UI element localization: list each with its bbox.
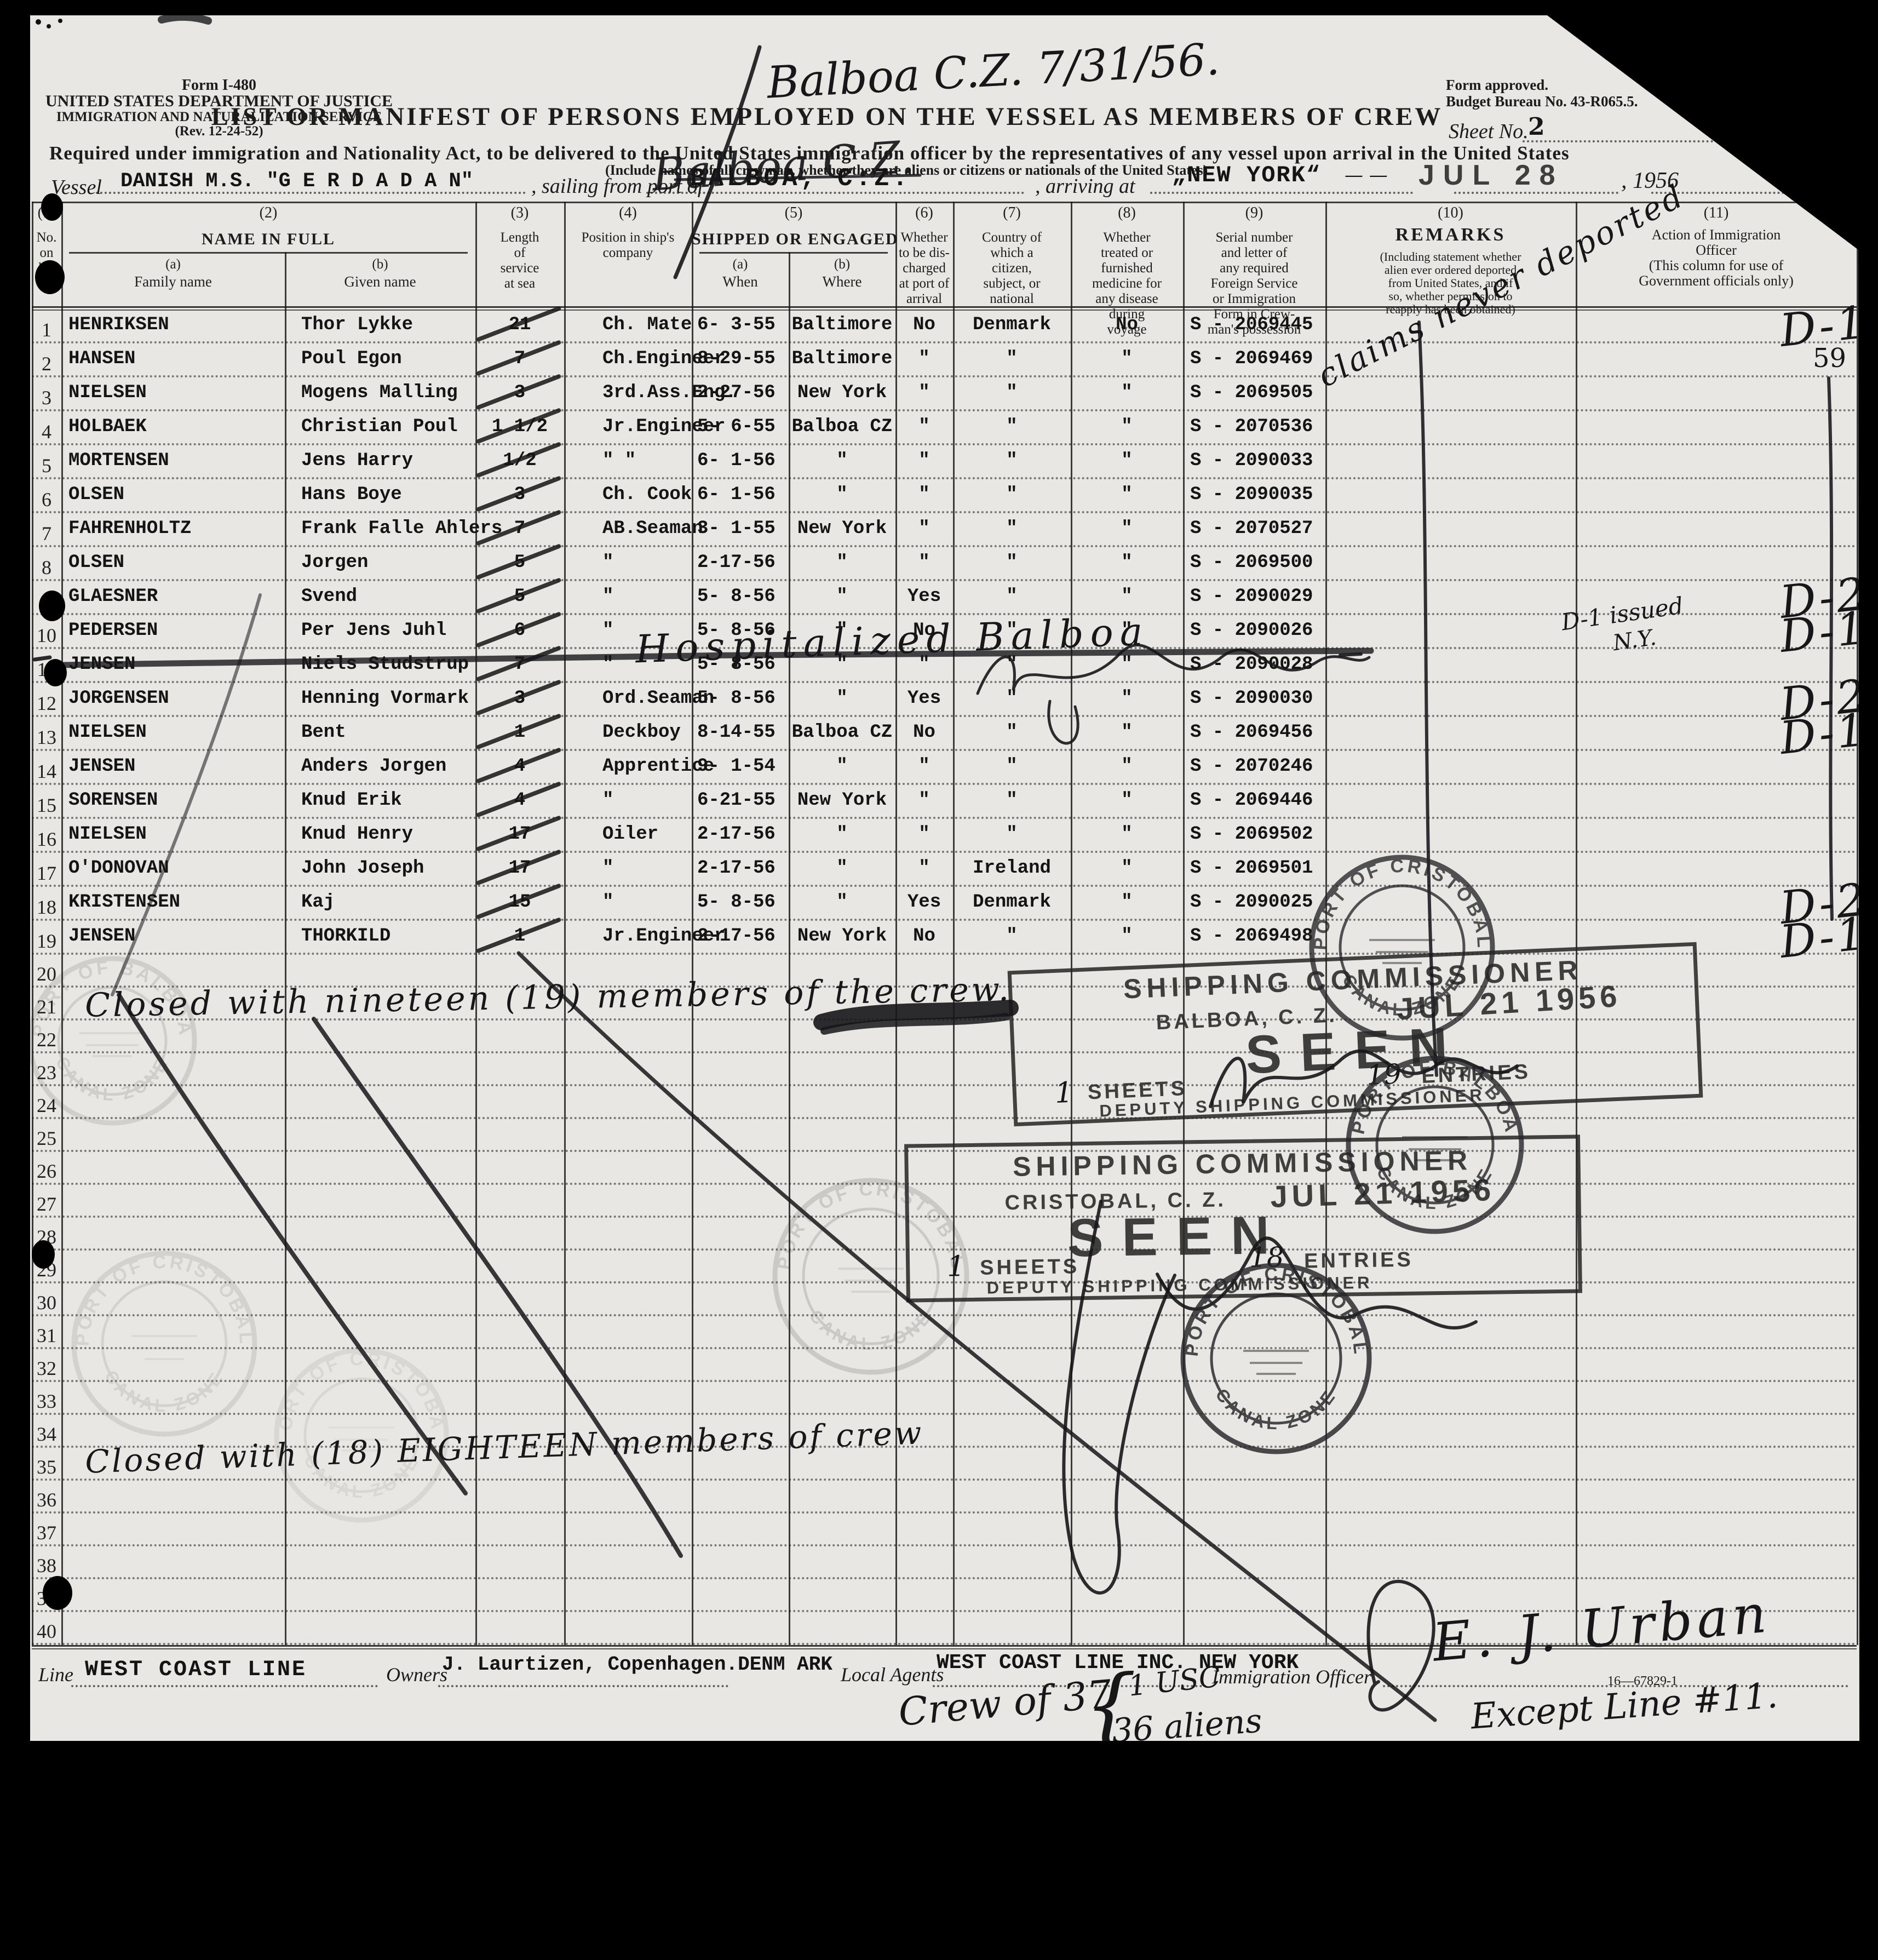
crew-where: New York — [789, 518, 895, 540]
crew-given: Niels Studstrup — [301, 654, 469, 675]
crew-dis: " — [895, 552, 953, 574]
crew-med: " — [1071, 857, 1183, 879]
row-number: 23 — [32, 1061, 61, 1084]
crew-when: 6- 3-55 — [697, 314, 776, 336]
crew-family: JENSEN — [68, 755, 135, 777]
crew-pos: " " — [602, 450, 636, 472]
line-label: Line — [38, 1663, 73, 1686]
crew-med: " — [1071, 552, 1183, 574]
crew-given: Knud Henry — [301, 823, 413, 845]
crew-when: 2-17-56 — [697, 857, 776, 879]
row-number: 25 — [32, 1127, 61, 1150]
column-subtext: arrival — [895, 291, 953, 307]
column-subtext: medicine for — [1071, 276, 1183, 291]
row-separator — [32, 783, 1857, 785]
crew-family: HENRIKSEN — [68, 314, 169, 336]
row-number: 40 — [32, 1620, 61, 1643]
column-subtext: Length — [475, 230, 564, 245]
crew-dis: No — [895, 721, 953, 743]
crew-given: Anders Jorgen — [301, 755, 446, 777]
row-separator — [32, 851, 1857, 853]
row-separator — [32, 1117, 1857, 1119]
column-subtext: (This column for use of — [1576, 257, 1857, 274]
crew-serial: S - 2069446 — [1190, 789, 1313, 811]
crew-serial: S - 2090030 — [1190, 687, 1313, 709]
crew-dis: Yes — [895, 891, 953, 913]
row-separator — [32, 1478, 1857, 1481]
crew-country: " — [953, 552, 1071, 574]
crew-country: " — [953, 789, 1071, 811]
crew-family: O'DONOVAN — [68, 857, 169, 879]
crew-family: PEDERSEN — [68, 620, 158, 641]
crew-where: " — [789, 586, 895, 608]
column-subtext: Position in ship's — [564, 230, 692, 245]
cristobal-stamp-sheets-value: 1 — [947, 1250, 966, 1283]
column-number: (1) — [32, 205, 61, 221]
row-number: 38 — [32, 1554, 61, 1577]
crew-country: " — [953, 416, 1071, 438]
crew-when: 6- 1-56 — [697, 450, 776, 472]
crew-dis: " — [895, 348, 953, 370]
balboa-seen-stamp: SHIPPING COMMISSIONER BALBOA, C. Z. JUL … — [1008, 942, 1703, 1126]
crew-med: " — [1071, 382, 1183, 404]
crew-given: Thor Lykke — [301, 314, 413, 336]
row-number: 37 — [32, 1521, 61, 1544]
crew-country: " — [953, 450, 1071, 472]
crew-family: NIELSEN — [68, 823, 147, 845]
owners-rule — [438, 1685, 728, 1687]
table-top-rule — [32, 202, 1857, 203]
row-number: 5 — [32, 454, 61, 477]
column-line — [61, 202, 63, 1645]
row-number: 9 — [32, 590, 61, 613]
row-separator — [32, 1511, 1857, 1514]
crew-when: 2-27-56 — [697, 382, 776, 404]
row-number: 7 — [32, 522, 61, 545]
crew-med: " — [1071, 348, 1183, 370]
crew-family: JORGENSEN — [68, 687, 169, 709]
balboa-stamp-entries-value: 19 — [1366, 1058, 1402, 1092]
crew-pos: " — [602, 552, 613, 574]
crew-dis: " — [895, 450, 953, 472]
row-separator — [32, 1413, 1857, 1415]
crew-med: " — [1071, 891, 1183, 913]
column-subtext: national — [953, 291, 1071, 307]
crew-dis: " — [895, 789, 953, 811]
row-separator — [32, 817, 1857, 819]
subcolumn-letter: (a) — [61, 256, 285, 272]
crew-med: " — [1071, 925, 1183, 947]
subcolumn-title: When — [692, 274, 789, 290]
crew-dis: " — [895, 857, 953, 879]
crew-where: New York — [789, 789, 895, 811]
row-number: 11 — [32, 658, 61, 681]
row-number: 19 — [32, 930, 61, 953]
column-subtext: charged — [895, 261, 953, 276]
crew-when: 5- 8-56 — [697, 687, 776, 709]
column-line — [1325, 202, 1327, 1645]
owners-label: Owners — [386, 1663, 447, 1686]
column-subtext: citizen, — [953, 261, 1071, 276]
crew-given: THORKILD — [301, 925, 390, 947]
crew-med: " — [1071, 518, 1183, 540]
column-subtext: at sea — [475, 276, 564, 291]
column-subtext: Government officials only) — [1576, 273, 1857, 289]
crew-serial: S - 2070527 — [1190, 518, 1313, 540]
cristobal-stamp-entries-value: 18 — [1249, 1241, 1284, 1274]
cristobal-seen-stamp: SHIPPING COMMISSIONER CRISTOBAL, C. Z. J… — [904, 1134, 1582, 1302]
crew-serial: S - 2070536 — [1190, 416, 1313, 438]
crew-country: Denmark — [953, 891, 1071, 913]
crew-given: Hans Boye — [301, 484, 402, 506]
column-subtext: and letter of — [1183, 245, 1325, 261]
crew-country: " — [953, 721, 1071, 743]
crew-pos: Ch. Cook — [602, 484, 692, 506]
row-number: 16 — [32, 828, 61, 851]
crew-country: " — [953, 755, 1071, 777]
crew-med: " — [1071, 755, 1183, 777]
crew-family: HOLBAEK — [68, 416, 147, 438]
crew-when: 2-17-56 — [697, 925, 776, 947]
crew-where: " — [789, 891, 895, 913]
crew-family: OLSEN — [68, 484, 124, 506]
row-number: 6 — [32, 488, 61, 511]
crew-given: Henning Vormark — [301, 687, 469, 709]
crew-serial: S - 2070246 — [1190, 755, 1313, 777]
crew-med: " — [1071, 586, 1183, 608]
crew-dis: Yes — [895, 687, 953, 709]
crew-family: OLSEN — [68, 552, 124, 574]
crew-dis: " — [895, 416, 953, 438]
row-separator — [32, 545, 1857, 547]
cristobal-stamp-entries-label: ENTRIES — [1304, 1248, 1414, 1274]
subheader-rule — [699, 252, 888, 254]
subheader-rule — [69, 252, 468, 254]
row-number: 39 — [32, 1587, 61, 1610]
balboa-stamp-entries-label: ENTRIES — [1421, 1061, 1531, 1088]
row-number: 22 — [32, 1028, 61, 1051]
crew-given: Mogens Malling — [301, 382, 458, 404]
row-number: 21 — [32, 995, 61, 1018]
crew-dis: " — [895, 484, 953, 506]
crew-when: 5- 6-55 — [697, 416, 776, 438]
crew-pos: " — [602, 620, 613, 641]
crew-dis: No — [895, 314, 953, 336]
crew-med: No — [1071, 314, 1183, 336]
crew-when: 6- 1-56 — [697, 484, 776, 506]
row-number: 10 — [32, 624, 61, 647]
column-subtext: which a — [953, 245, 1071, 261]
crew-med: " — [1071, 823, 1183, 845]
column-subtext: any required — [1183, 261, 1325, 276]
crew-serial: S - 2069500 — [1190, 552, 1313, 574]
column-subtext: on — [32, 245, 61, 261]
row-number: 8 — [32, 556, 61, 579]
subcolumn-title: Where — [789, 274, 895, 290]
crew-where: Balboa CZ — [789, 721, 895, 743]
column-number: (7) — [953, 205, 1071, 221]
row-separator — [32, 1380, 1857, 1382]
column-number: (6) — [895, 205, 953, 221]
row-number: 12 — [32, 692, 61, 715]
column-line — [1576, 202, 1577, 1645]
crew-serial: S - 2090026 — [1190, 620, 1313, 641]
column-number: (2) — [61, 205, 475, 221]
immigration-action: D-1 — [1777, 602, 1869, 663]
row-number: 31 — [32, 1324, 61, 1347]
crew-where: " — [789, 484, 895, 506]
row-number: 1 — [32, 318, 61, 341]
column-subtext: Whether — [895, 230, 953, 245]
row-number: 30 — [32, 1291, 61, 1314]
crew-given: Christian Poul — [301, 416, 458, 438]
column-subtext: No. — [32, 230, 61, 245]
crew-country: " — [953, 687, 1071, 709]
crew-dis: " — [895, 518, 953, 540]
subcolumn-title: Family name — [61, 274, 285, 290]
column-number: (5) — [692, 205, 895, 221]
column-subtext: service — [475, 261, 564, 276]
column-subtext: at port of — [895, 276, 953, 291]
row-number: 34 — [32, 1423, 61, 1446]
crew-given: Bent — [301, 721, 346, 743]
crew-where: " — [789, 687, 895, 709]
crew-given: Per Jens Juhl — [301, 620, 446, 641]
crew-pos: " — [602, 586, 613, 608]
crew-family: NIELSEN — [68, 721, 147, 743]
column-title: REMARKS — [1325, 225, 1576, 245]
crew-family: JENSEN — [68, 654, 135, 675]
crew-where: " — [789, 755, 895, 777]
crew-when: 3- 1-55 — [697, 518, 776, 540]
crew-family: SORENSEN — [68, 789, 158, 811]
crew-where: " — [789, 823, 895, 845]
row-separator — [32, 1544, 1857, 1546]
crew-when: 6-21-55 — [697, 789, 776, 811]
row-number: 13 — [32, 726, 61, 749]
crew-when: 5- 8-56 — [697, 586, 776, 608]
crew-where: " — [789, 450, 895, 472]
subcolumn-letter: (a) — [692, 256, 789, 272]
row-number: 26 — [32, 1160, 61, 1183]
officer-label: Immigration Officer — [1212, 1665, 1371, 1688]
line-value: WEST COAST LINE — [85, 1658, 307, 1682]
owners-value: J. Laurtizen, Copenhagen.DENM ARK — [442, 1653, 832, 1676]
row-number: 32 — [32, 1357, 61, 1380]
column-title: NAME IN FULL — [61, 230, 475, 249]
column-subtext: company — [564, 245, 692, 261]
row-number: 4 — [32, 420, 61, 443]
crew-given: Svend — [301, 586, 357, 608]
crew-country: " — [953, 925, 1071, 947]
row-separator — [32, 715, 1857, 717]
crew-serial: S - 2069505 — [1190, 382, 1313, 404]
row-separator — [32, 919, 1857, 921]
crew-given: Frank Falle Ahlers — [301, 518, 502, 540]
column-subtext: Country of — [953, 230, 1071, 245]
row-number: 28 — [32, 1225, 61, 1248]
crew-when: 9- 1-54 — [697, 755, 776, 777]
crew-when: 8-29-55 — [697, 348, 776, 370]
row-separator — [32, 443, 1857, 445]
crew-country: Ireland — [953, 857, 1071, 879]
row-separator — [32, 477, 1857, 479]
scanned-crew-manifest: { "header": { "form_no": "Form I-480", "… — [0, 0, 1878, 1960]
row-number: 2 — [32, 352, 61, 375]
row-separator — [32, 579, 1857, 581]
crew-when: 8-14-55 — [697, 721, 776, 743]
row-number: 35 — [32, 1455, 61, 1478]
crew-pos: " — [602, 789, 613, 811]
crew-serial: S - 2090033 — [1190, 450, 1313, 472]
row-separator — [32, 375, 1857, 377]
column-number: (4) — [564, 205, 692, 221]
subcolumn-title: Given name — [285, 274, 475, 290]
row-separator — [32, 749, 1857, 751]
crew-serial: S - 2090025 — [1190, 891, 1313, 913]
crew-where: New York — [789, 382, 895, 404]
row-separator — [32, 409, 1857, 411]
row-number: 20 — [32, 962, 61, 985]
row-number: 18 — [32, 896, 61, 919]
column-subtext: any disease — [1071, 291, 1183, 307]
crew-dis: Yes — [895, 586, 953, 608]
crew-country: " — [953, 586, 1071, 608]
crew-pos: Oiler — [602, 823, 658, 845]
row-number: 29 — [32, 1258, 61, 1281]
crew-when: 2-17-56 — [697, 552, 776, 574]
crew-dis: " — [895, 755, 953, 777]
column-subtext: to be dis- — [895, 245, 953, 261]
row-separator — [32, 1577, 1857, 1579]
crew-where: Balboa CZ — [789, 416, 895, 438]
column-subtext: treated or — [1071, 245, 1183, 261]
crew-country: " — [953, 484, 1071, 506]
crew-country: " — [953, 382, 1071, 404]
crew-med: " — [1071, 789, 1183, 811]
crew-pos: Deckboy — [602, 721, 681, 743]
row-number: 14 — [32, 760, 61, 783]
crew-given: Jens Harry — [301, 450, 413, 472]
crew-given: Knud Erik — [301, 789, 402, 811]
row-separator — [32, 885, 1857, 887]
crew-family: HANSEN — [68, 348, 135, 370]
crew-med: " — [1071, 654, 1183, 675]
crew-dis: No — [895, 925, 953, 947]
crew-when: 2-17-56 — [697, 823, 776, 845]
row-separator — [32, 511, 1857, 513]
crew-pos: " — [602, 654, 613, 675]
cristobal-stamp-sheets-label: SHEETS — [980, 1255, 1080, 1280]
crew-med: " — [1071, 416, 1183, 438]
column-subtext: furnished — [1071, 261, 1183, 276]
crew-given: Jorgen — [301, 552, 368, 574]
crew-where: " — [789, 857, 895, 879]
crew-family: FAHRENHOLTZ — [68, 518, 191, 540]
crew-serial: S - 2090028 — [1190, 654, 1313, 675]
crew-pos: " — [602, 857, 613, 879]
subcolumn-letter: (b) — [285, 256, 475, 272]
manifest-sheet: Form I-480 UNITED STATES DEPARTMENT OF J… — [30, 15, 1859, 1741]
column-subtext: Foreign Service — [1183, 276, 1325, 291]
row-number: 27 — [32, 1193, 61, 1216]
crew-family: NIELSEN — [68, 382, 147, 404]
agents-label: Local Agents — [841, 1663, 944, 1686]
row-separator — [32, 681, 1857, 683]
crew-when: 5- 8-56 — [697, 891, 776, 913]
crew-med: " — [1071, 721, 1183, 743]
crew-serial: S - 2069469 — [1190, 348, 1313, 370]
column-number: (9) — [1183, 205, 1325, 221]
crew-med: " — [1071, 484, 1183, 506]
immigration-action: D-1 — [1777, 704, 1869, 765]
crew-given: John Joseph — [301, 857, 424, 879]
crew-family: MORTENSEN — [68, 450, 169, 472]
crew-where: " — [789, 552, 895, 574]
crew-pos: " — [602, 891, 613, 913]
col11-handwritten-59: 59 — [1813, 343, 1846, 374]
column-line — [1183, 202, 1185, 1645]
crew-pos: AB.Seaman — [602, 518, 703, 540]
immigration-action: D-1 — [1777, 908, 1869, 968]
row-number: 36 — [32, 1488, 61, 1511]
column-subtext: Whether — [1071, 230, 1183, 245]
crew-serial: S - 2069456 — [1190, 721, 1313, 743]
column-subtext: list — [32, 261, 61, 276]
column-subtext: or Immigration — [1183, 291, 1325, 307]
column-number: (10) — [1325, 205, 1576, 221]
row-separator — [32, 1347, 1857, 1349]
crew-where: Baltimore — [789, 314, 895, 336]
row-number: 24 — [32, 1094, 61, 1117]
row-number: 33 — [32, 1390, 61, 1413]
crew-family: KRISTENSEN — [68, 891, 180, 913]
crew-country: Denmark — [953, 314, 1071, 336]
crew-dis: " — [895, 382, 953, 404]
crew-pos: Ch. Mate — [602, 314, 692, 336]
crew-family: JENSEN — [68, 925, 135, 947]
row-number: 17 — [32, 862, 61, 885]
line-rule — [71, 1685, 378, 1687]
crew-med: " — [1071, 687, 1183, 709]
crew-serial: S - 2090029 — [1190, 586, 1313, 608]
crew-where: New York — [789, 925, 895, 947]
row-separator — [32, 1314, 1857, 1316]
crew-dis: " — [895, 823, 953, 845]
column-subtext: subject, or — [953, 276, 1071, 291]
crew-country: " — [953, 518, 1071, 540]
crew-serial: S - 2069498 — [1190, 925, 1313, 947]
row-separator — [32, 341, 1857, 343]
crew-serial: S - 2069502 — [1190, 823, 1313, 845]
crew-given: Kaj — [301, 891, 335, 913]
crew-med: " — [1071, 450, 1183, 472]
crew-country: " — [953, 823, 1071, 845]
crew-family: GLAESNER — [68, 586, 158, 608]
crew-given: Poul Egon — [301, 348, 402, 370]
balboa-stamp-sheets-value: 1 — [1054, 1076, 1074, 1110]
column-subtext: of — [475, 245, 564, 261]
crew-serial: S - 2069501 — [1190, 857, 1313, 879]
crew-serial: S - 2069445 — [1190, 314, 1313, 336]
crew-country: " — [953, 348, 1071, 370]
column-number: (8) — [1071, 205, 1183, 221]
crew-where: Baltimore — [789, 348, 895, 370]
manifest-table: (1)No.onlist(2)NAME IN FULL(a)Family nam… — [30, 15, 1859, 1741]
column-number: (3) — [475, 205, 564, 221]
crew-serial: S - 2090035 — [1190, 484, 1313, 506]
header-bottom-rule — [32, 306, 1857, 311]
